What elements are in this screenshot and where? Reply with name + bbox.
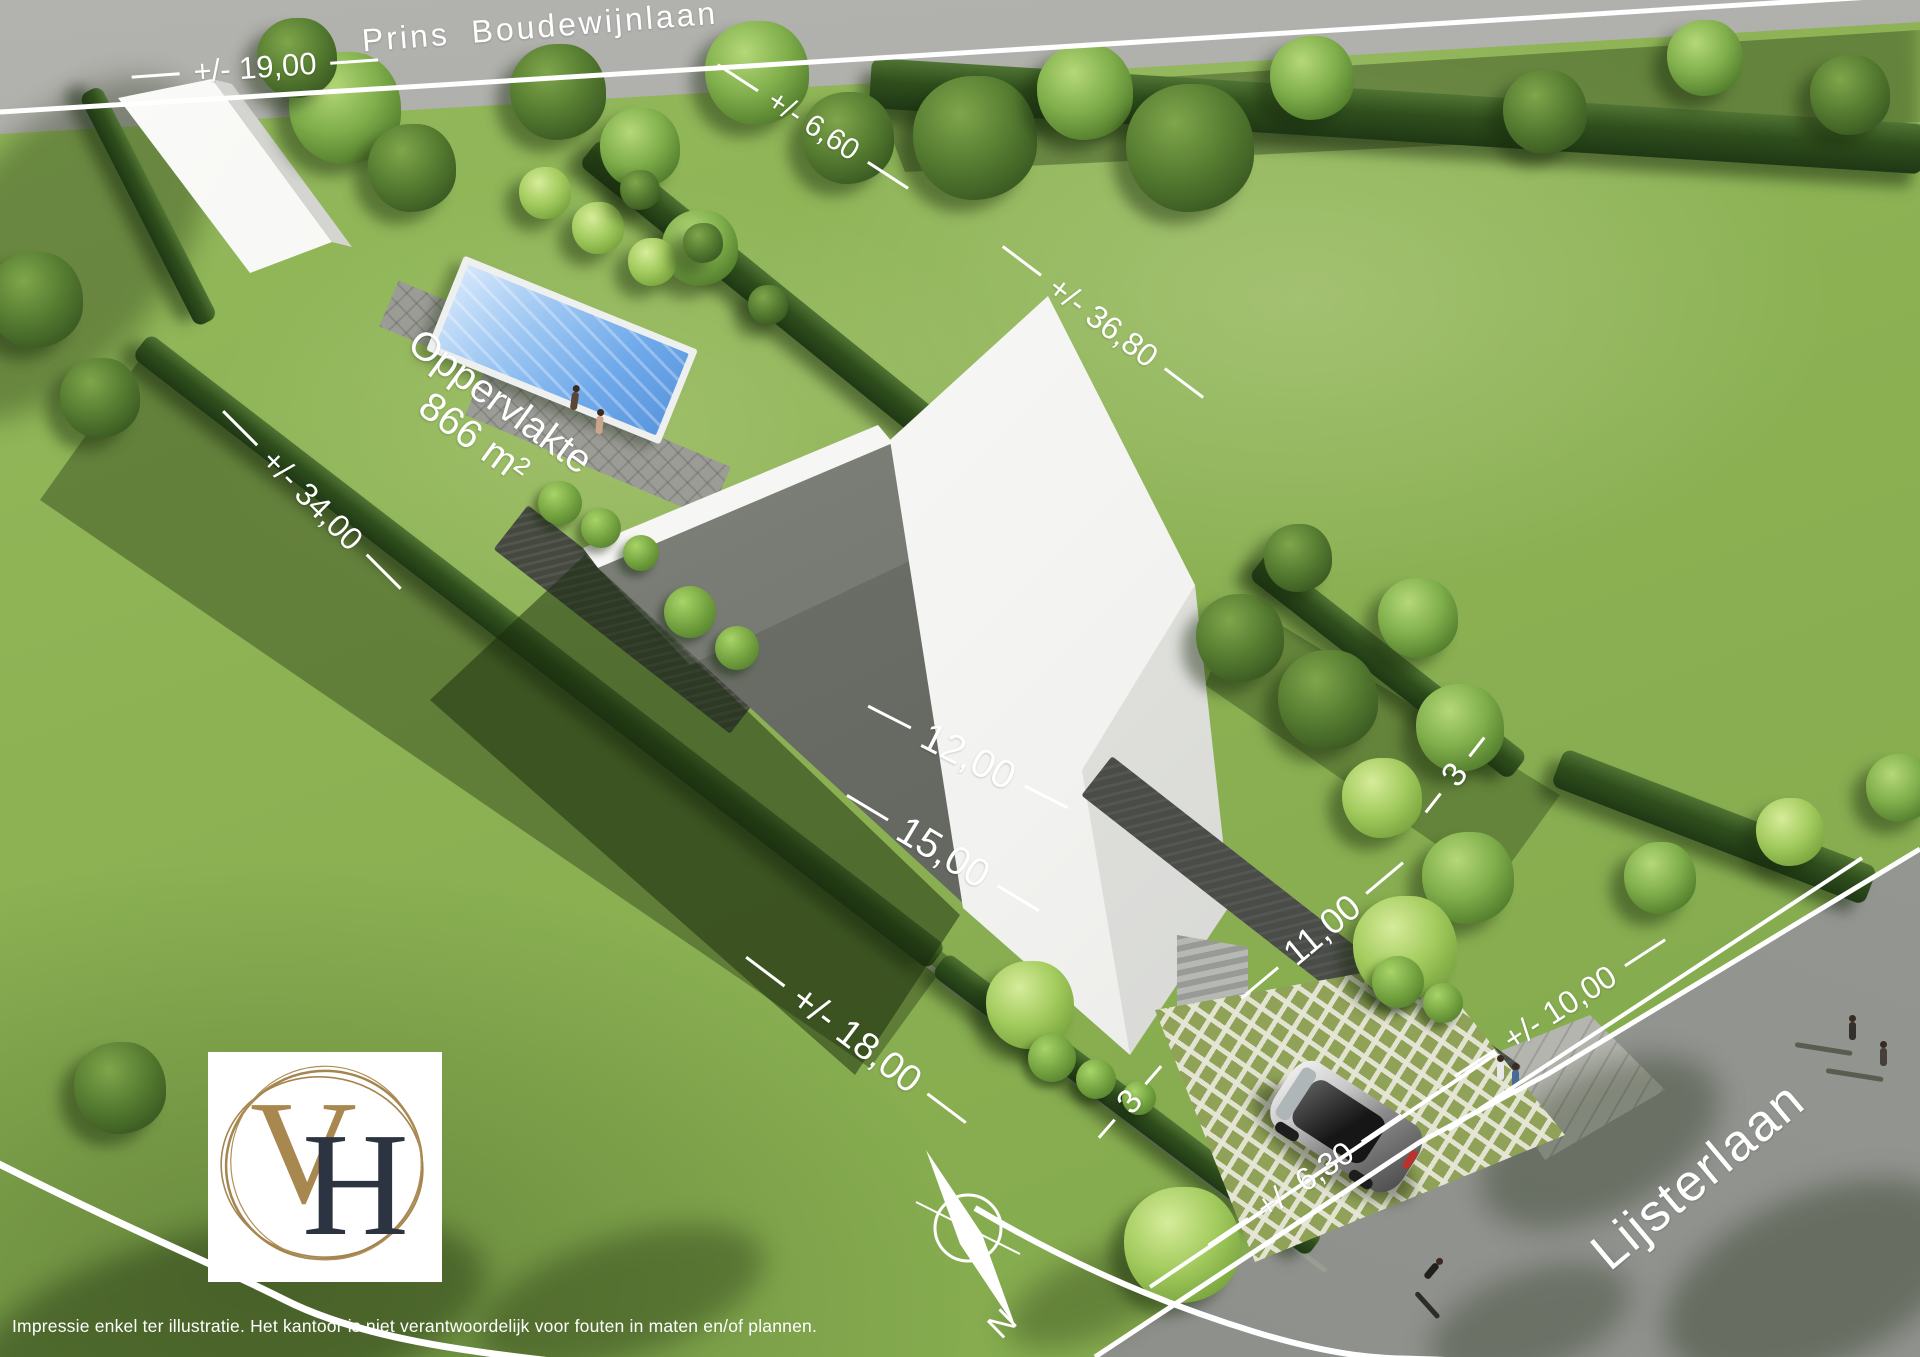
dimension-tick <box>867 160 909 189</box>
bush <box>581 508 621 548</box>
disclaimer-text: Impressie enkel ter illustratie. Het kan… <box>12 1316 817 1337</box>
bush <box>1423 983 1463 1023</box>
dimension-tick <box>1361 1113 1402 1142</box>
person <box>1512 1070 1519 1088</box>
dimension-tick <box>717 63 759 92</box>
dimension-tick <box>745 956 785 987</box>
dimension-tick <box>1144 1065 1162 1085</box>
bush <box>623 535 659 571</box>
dimension-tick <box>997 885 1040 912</box>
dimension-tick <box>1425 793 1442 814</box>
bush <box>1372 956 1424 1008</box>
site-plan-rendering: N Prins Boudewijnlaan Lijsterlaan Opperv… <box>0 0 1920 1357</box>
dimension-tick <box>1468 737 1485 758</box>
dimension-tick <box>867 705 911 729</box>
bush <box>1076 1059 1116 1099</box>
dimension-tick <box>222 410 258 446</box>
bush <box>715 626 759 670</box>
dimension-tick <box>366 554 402 590</box>
person <box>1880 1048 1887 1066</box>
person <box>1849 1022 1856 1040</box>
dimension-tick <box>846 794 889 821</box>
bush <box>664 586 716 638</box>
logo-letter-h: H <box>302 1100 409 1270</box>
dimension-tick <box>1624 938 1666 967</box>
dimension-tick <box>1098 1119 1116 1139</box>
dimension-tick <box>132 72 180 78</box>
dimension-tick <box>1164 368 1204 399</box>
dimension-tick <box>330 58 378 64</box>
dimension-tick <box>1240 966 1279 999</box>
dimension-tick <box>1002 245 1042 276</box>
bush <box>1028 1034 1076 1082</box>
dimension-tick <box>1365 861 1404 894</box>
dimension-tick <box>1024 785 1068 809</box>
dimension-tick <box>1454 1049 1496 1078</box>
brand-logo: V H <box>208 1052 442 1282</box>
dimension-tick <box>1207 1217 1248 1246</box>
dimension-tick <box>927 1093 967 1124</box>
